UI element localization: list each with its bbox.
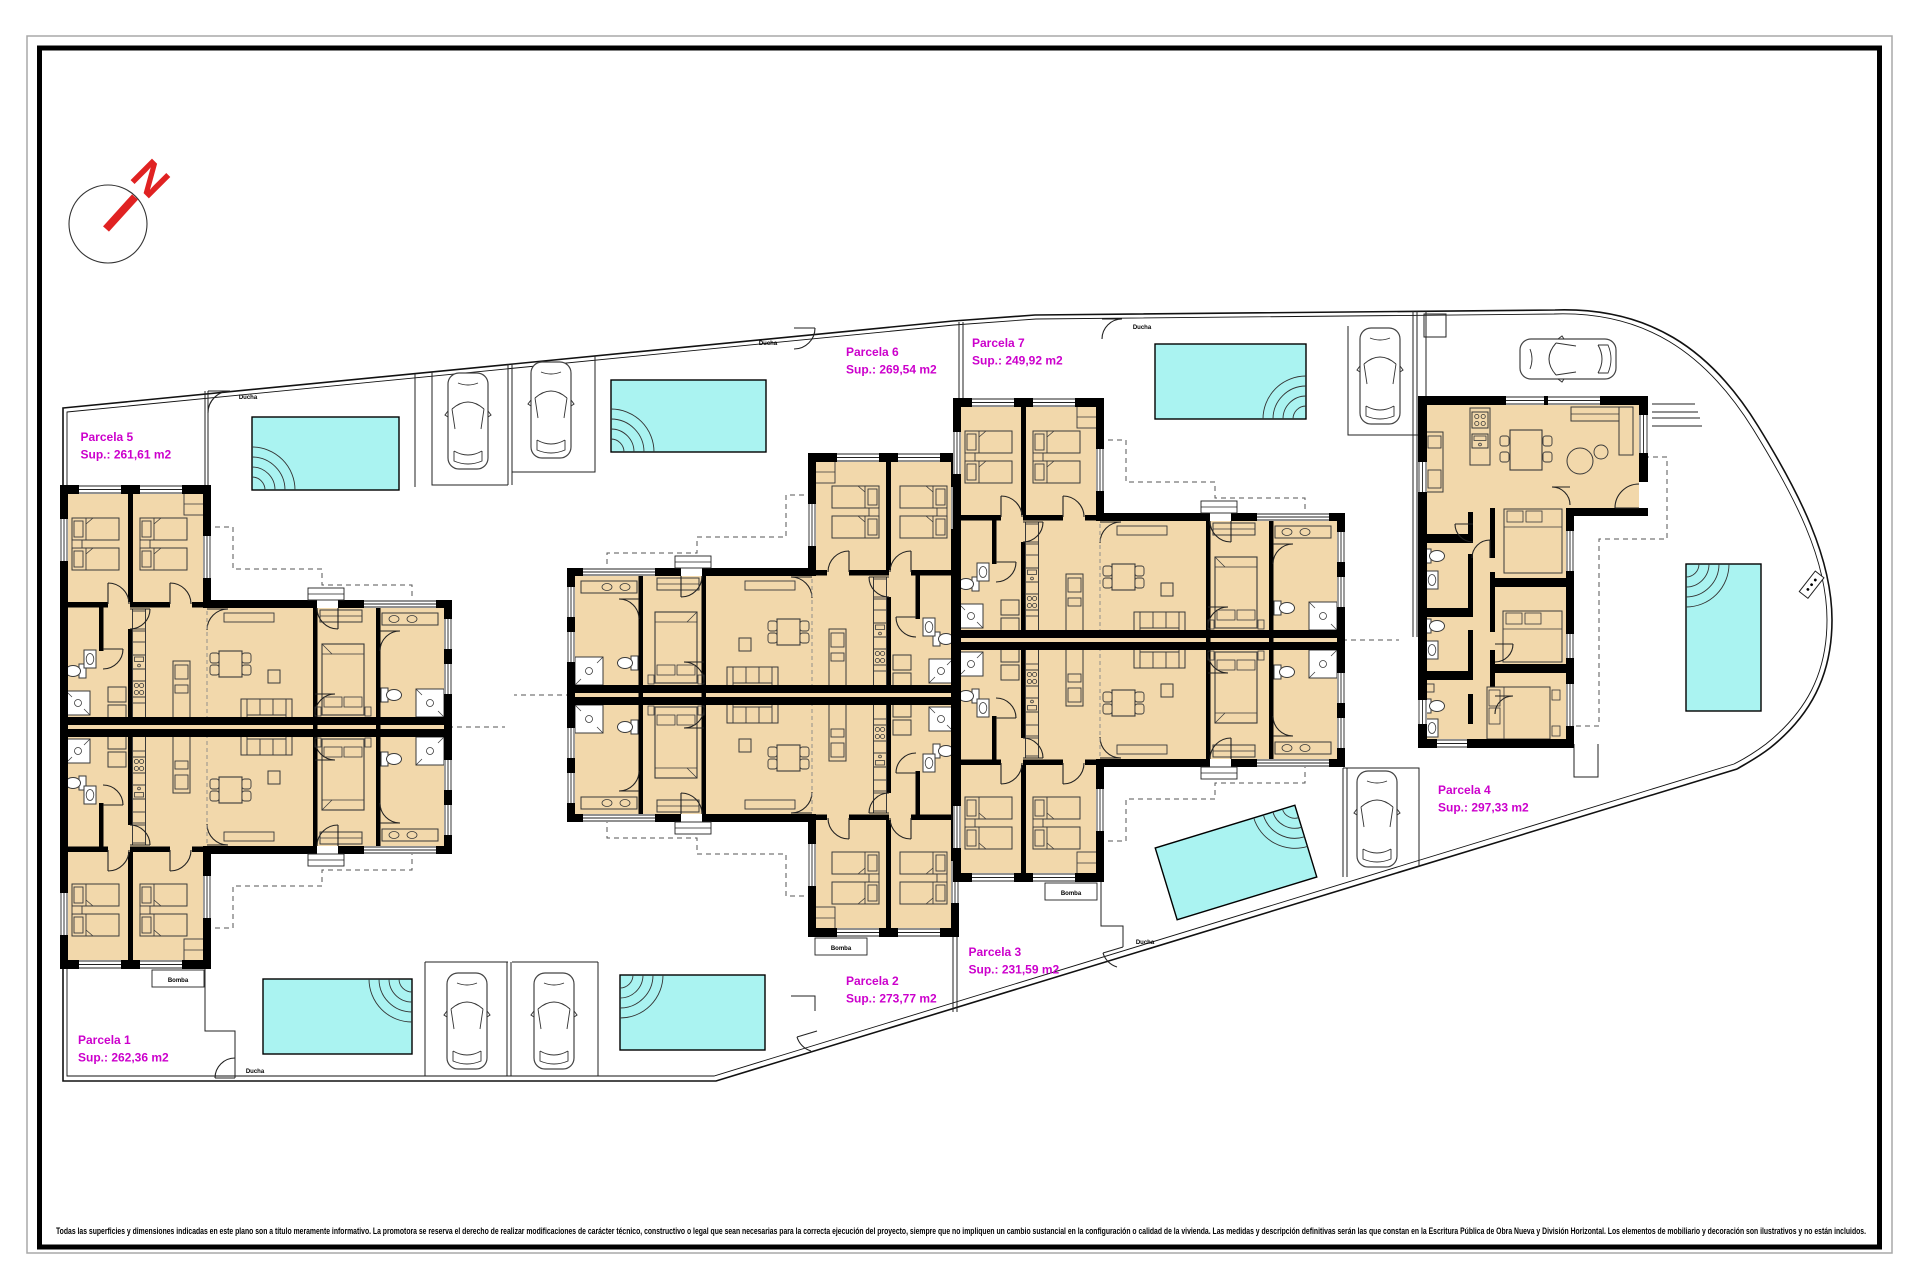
svg-text:Parcela 4: Parcela 4 <box>1438 783 1491 797</box>
svg-text:Todas las superficies y dimens: Todas las superficies y dimensiones indi… <box>56 1226 1866 1236</box>
svg-text:Bomba: Bomba <box>1061 891 1082 897</box>
svg-text:Parcela 2: Parcela 2 <box>846 974 899 988</box>
svg-text:Sup.: 297,33 m2: Sup.: 297,33 m2 <box>1438 801 1529 815</box>
svg-text:Sup.: 262,36 m2: Sup.: 262,36 m2 <box>78 1051 169 1065</box>
svg-text:Bomba: Bomba <box>831 946 852 952</box>
svg-text:Ducha: Ducha <box>1133 325 1152 331</box>
svg-text:Ducha: Ducha <box>759 341 778 347</box>
svg-text:Ducha: Ducha <box>246 1069 265 1075</box>
svg-text:Ducha: Ducha <box>1136 940 1155 946</box>
svg-text:Sup.: 269,54 m2: Sup.: 269,54 m2 <box>846 363 937 377</box>
svg-text:Ducha: Ducha <box>239 395 258 401</box>
svg-text:Parcela 3: Parcela 3 <box>969 945 1022 959</box>
svg-text:Sup.: 231,59 m2: Sup.: 231,59 m2 <box>969 963 1060 977</box>
svg-text:Parcela 7: Parcela 7 <box>972 336 1025 350</box>
svg-text:Bomba: Bomba <box>168 978 189 984</box>
svg-text:Sup.: 249,92 m2: Sup.: 249,92 m2 <box>972 354 1063 368</box>
svg-text:Parcela 5: Parcela 5 <box>81 430 134 444</box>
svg-text:Parcela 1: Parcela 1 <box>78 1033 131 1047</box>
svg-text:Parcela 6: Parcela 6 <box>846 345 899 359</box>
svg-text:Sup.: 261,61 m2: Sup.: 261,61 m2 <box>81 448 172 462</box>
svg-text:Sup.: 273,77 m2: Sup.: 273,77 m2 <box>846 992 937 1006</box>
